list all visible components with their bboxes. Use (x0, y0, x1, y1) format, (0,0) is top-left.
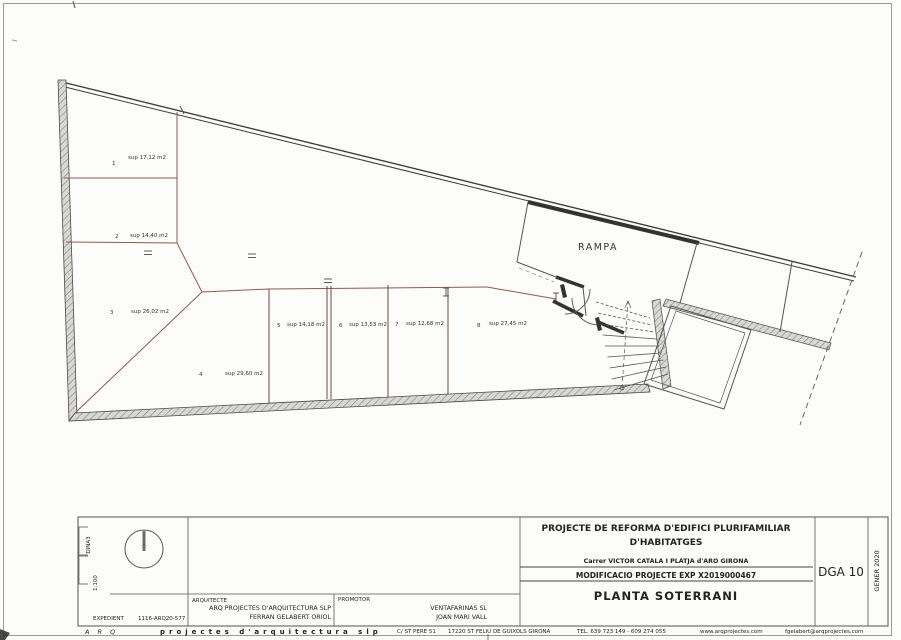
promoter-name: VENTAFARINAS SL (430, 605, 487, 612)
architect-name: ARQ PROJECTES D'ARQUITECTURA SLP (209, 605, 331, 612)
title-block: DINA3 1:100 EXPEDIENT 1116-ARQ20-577 ARQ… (78, 517, 888, 626)
sheet-title: PLANTA SOTERRANI (594, 589, 738, 603)
parking-stalls (269, 285, 448, 403)
project-address: Carrer VICTOR CATALA I PLATJA d'ARO GIRO… (584, 558, 749, 565)
door-leaf (560, 284, 567, 298)
scan-smudge (0, 629, 10, 640)
footer-strip: A R Q projectes d'arquitectura slp C/ ST… (84, 628, 863, 640)
plan-labels: 1 sup 17,12 m2 2 sup 14,40 m2 3 sup 26,0… (110, 155, 618, 378)
sheet-code: DGA 10 (818, 565, 864, 579)
expedient-label: EXPEDIENT (93, 616, 124, 622)
tick-marks (144, 106, 559, 301)
footer-brand: A R Q (84, 628, 118, 636)
margin-marks (79, 527, 88, 584)
expedient-value: 1116-ARQ20-577 (138, 616, 186, 622)
project-title-line2: D'HABITATGES (630, 538, 703, 548)
vestibule (553, 277, 624, 333)
promoter-person: JOAN MARI VALL (435, 614, 487, 621)
footer-city: 17220 ST FELIU DE GUIXOLS GIRONA (448, 629, 551, 635)
space-1-number: 1 (112, 161, 116, 167)
paper-size-label: DINA3 (86, 536, 92, 554)
scale-label: 1:100 (93, 575, 99, 591)
promoter-label: PROMOTOR (338, 597, 370, 603)
space-2-area: sup 14,40 m2 (130, 233, 168, 239)
plan-svg: 1 sup 17,12 m2 2 sup 14,40 m2 3 sup 26,0… (0, 0, 901, 640)
space-8-number: 8 (477, 323, 481, 329)
left-wall (58, 80, 77, 421)
north-symbol (125, 530, 163, 568)
sheet-date: GENER 2020 (873, 550, 881, 591)
architect-person: FERRAN GELABERT ORIOL (249, 614, 331, 621)
space-4-area: sup 29,60 m2 (225, 371, 263, 377)
space-7-area: sup 12,68 m2 (406, 321, 444, 327)
space-7-number: 7 (395, 322, 399, 328)
space-6-area: sup 13,53 m2 (349, 322, 387, 328)
space-3-area: sup 26,02 m2 (131, 309, 169, 315)
footer-phone: TEL. 639 723 149 - 609 274 055 (576, 629, 666, 635)
space-5-area: sup 14,18 m2 (287, 322, 325, 328)
walls (58, 80, 856, 421)
space-5-number: 5 (277, 323, 281, 329)
architect-label: ARQUITECTE (192, 598, 228, 604)
right-rooms (644, 252, 862, 425)
footer-email: fgelabert@arqprojectes.com (785, 629, 863, 635)
modification-line: MODIFICACIO PROJECTE EXP X2019000467 (576, 571, 756, 580)
bottom-wall (69, 384, 650, 421)
project-title-line1: PROJECTE DE REFORMA D'EDIFICI PLURIFAMIL… (541, 524, 790, 534)
floor-plan: 1 sup 17,12 m2 2 sup 14,40 m2 3 sup 26,0… (58, 80, 862, 425)
space-4-number: 4 (199, 372, 203, 378)
scanned-drawing-sheet: 1 sup 17,12 m2 2 sup 14,40 m2 3 sup 26,0… (0, 0, 901, 640)
space-8-area: sup 27,45 m2 (489, 321, 527, 327)
footer-web: www.arqprojectes.com (700, 629, 763, 635)
space-6-number: 6 (339, 323, 343, 329)
space-3-number: 3 (110, 310, 114, 316)
ramp-label: RAMPA (578, 242, 618, 253)
sheet-frame (0, 1, 892, 640)
space-2-number: 2 (115, 234, 119, 240)
footer-address: C/ ST PERE 51 (397, 629, 436, 635)
space-1-area: sup 17,12 m2 (128, 155, 166, 161)
footer-firm: projectes d'arquitectura slp (160, 628, 382, 636)
